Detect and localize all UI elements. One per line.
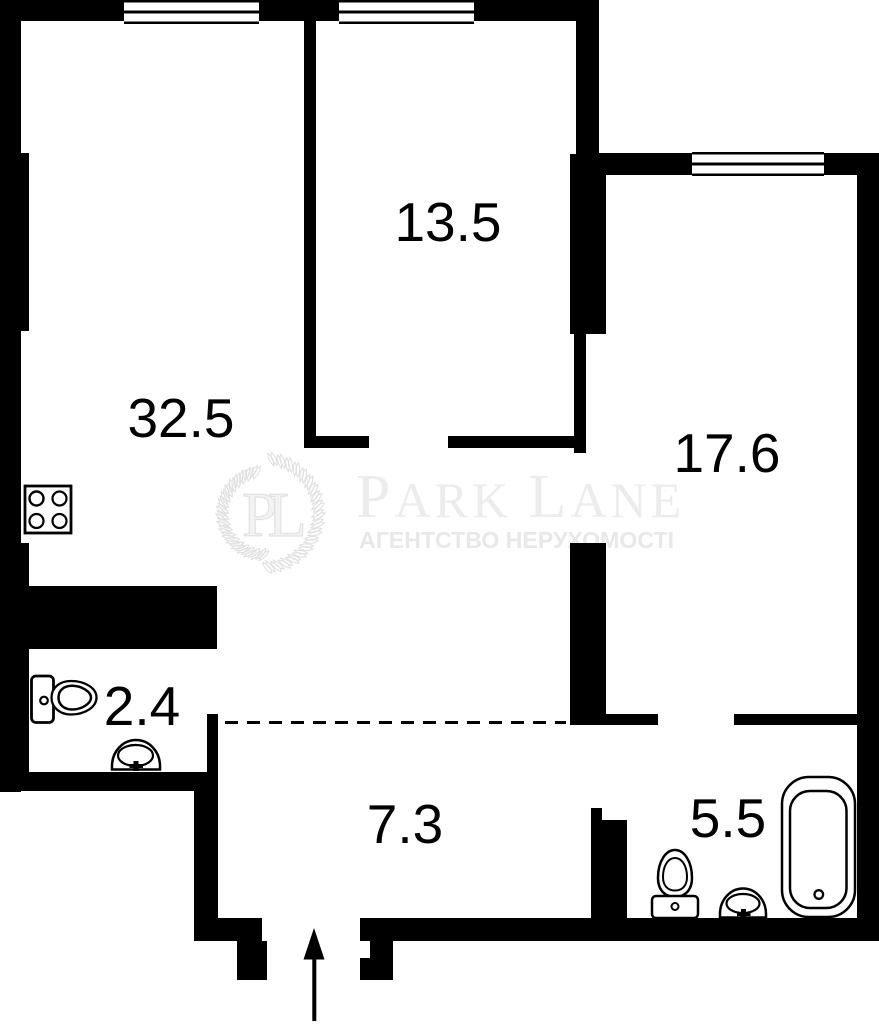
svg-text:17.6: 17.6 (673, 422, 780, 484)
svg-text:PL: PL (242, 479, 304, 550)
svg-text:АГЕНТСТВО НЕРУХОМОСТІ: АГЕНТСТВО НЕРУХОМОСТІ (359, 527, 674, 553)
svg-text:7.3: 7.3 (367, 793, 443, 855)
svg-text:2.4: 2.4 (104, 675, 180, 737)
svg-text:5.5: 5.5 (690, 787, 766, 849)
svg-text:PARK LANE: PARK LANE (356, 463, 685, 531)
svg-text:13.5: 13.5 (394, 191, 501, 253)
svg-text:32.5: 32.5 (127, 387, 234, 449)
